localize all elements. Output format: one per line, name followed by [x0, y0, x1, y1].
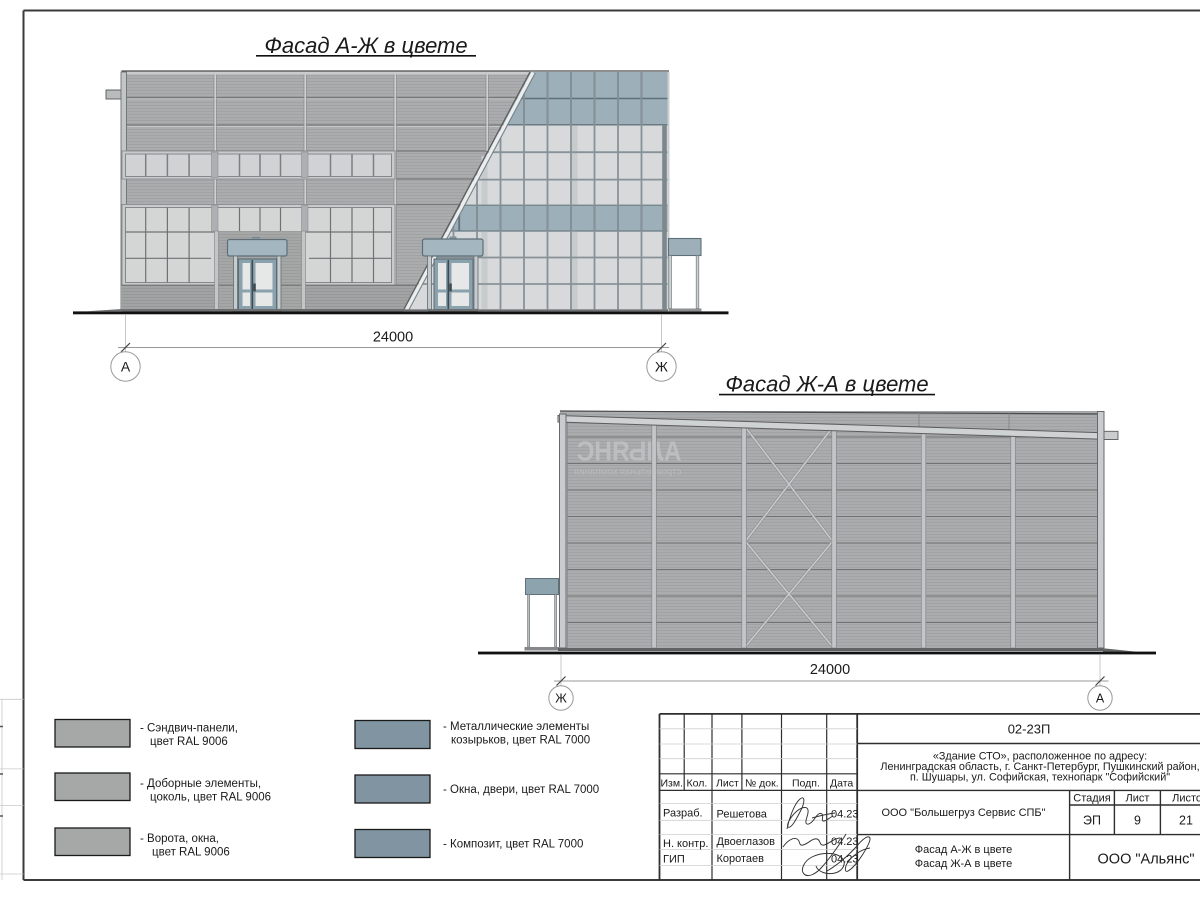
svg-text:№ док.: № док.: [745, 778, 779, 790]
svg-text:Фасад Ж-А в цвете: Фасад Ж-А в цвете: [725, 372, 928, 397]
svg-text:Фасад А-Ж в цвете: Фасад А-Ж в цвете: [264, 33, 467, 58]
svg-text:ООО "Большегруз Сервис СПБ": ООО "Большегруз Сервис СПБ": [881, 807, 1045, 819]
svg-text:04.23: 04.23: [831, 809, 859, 821]
svg-text:цоколь, цвет RAL 9006: цоколь, цвет RAL 9006: [150, 792, 271, 804]
svg-text:АЛЬЯНС: АЛЬЯНС: [577, 435, 682, 467]
svg-text:Фасад А-Ж в цвете: Фасад А-Ж в цвете: [915, 844, 1013, 856]
svg-text:Фасад Ж-А в цвете: Фасад Ж-А в цвете: [915, 858, 1013, 870]
svg-text:Дата: Дата: [830, 778, 853, 790]
svg-text:ООО "Альянс": ООО "Альянс": [1098, 852, 1195, 868]
svg-text:9: 9: [1134, 814, 1141, 828]
svg-text:- Окна, двери, цвет RAL 7000: - Окна, двери, цвет RAL 7000: [443, 784, 599, 796]
svg-text:Листов: Листов: [1172, 793, 1200, 805]
svg-text:21: 21: [1179, 814, 1193, 828]
svg-text:ЭП: ЭП: [1083, 814, 1101, 828]
svg-text:Двоеглазов: Двоеглазов: [717, 836, 776, 848]
svg-text:Изм.: Изм.: [661, 778, 684, 790]
svg-text:24000: 24000: [373, 330, 413, 346]
svg-text:А: А: [121, 359, 131, 375]
svg-text:Разраб.: Разраб.: [663, 808, 703, 820]
svg-text:- Сэндвич-панели,: - Сэндвич-панели,: [140, 723, 238, 735]
svg-text:Кол.: Кол.: [687, 778, 708, 790]
svg-text:02-23П: 02-23П: [1008, 722, 1051, 737]
svg-text:24000: 24000: [810, 662, 850, 678]
svg-text:цвет RAL 9006: цвет RAL 9006: [152, 847, 230, 859]
svg-text:Ж: Ж: [655, 359, 668, 375]
svg-text:Стадия: Стадия: [1073, 793, 1111, 805]
svg-text:Н. контр.: Н. контр.: [663, 838, 708, 850]
svg-text:Лист: Лист: [716, 778, 739, 790]
svg-text:Подп.: Подп.: [792, 778, 820, 790]
svg-text:козырьков, цвет RAL 7000: козырьков, цвет RAL 7000: [451, 735, 590, 747]
svg-text:Решетова: Решетова: [717, 809, 768, 821]
svg-text:Лист: Лист: [1126, 793, 1150, 805]
svg-text:04.23: 04.23: [831, 836, 859, 848]
svg-text:Коротаев: Коротаев: [717, 853, 765, 865]
svg-text:- Ворота, окна,: - Ворота, окна,: [140, 833, 219, 845]
svg-text:цвет RAL 9006: цвет RAL 9006: [150, 736, 228, 748]
svg-text:- Доборные элементы,: - Доборные элементы,: [140, 778, 261, 790]
svg-text:- Металлические элементы: - Металлические элементы: [443, 721, 589, 733]
svg-text:п. Шушары, ул. Софийская, техн: п. Шушары, ул. Софийская, технопарк "Соф…: [910, 772, 1170, 784]
svg-text:строительная компания: строительная компания: [574, 467, 682, 477]
svg-text:А: А: [1096, 692, 1105, 706]
svg-text:Ж: Ж: [555, 692, 567, 706]
svg-text:- Композит, цвет RAL 7000: - Композит, цвет RAL 7000: [443, 839, 583, 851]
svg-text:ГИП: ГИП: [663, 854, 685, 866]
